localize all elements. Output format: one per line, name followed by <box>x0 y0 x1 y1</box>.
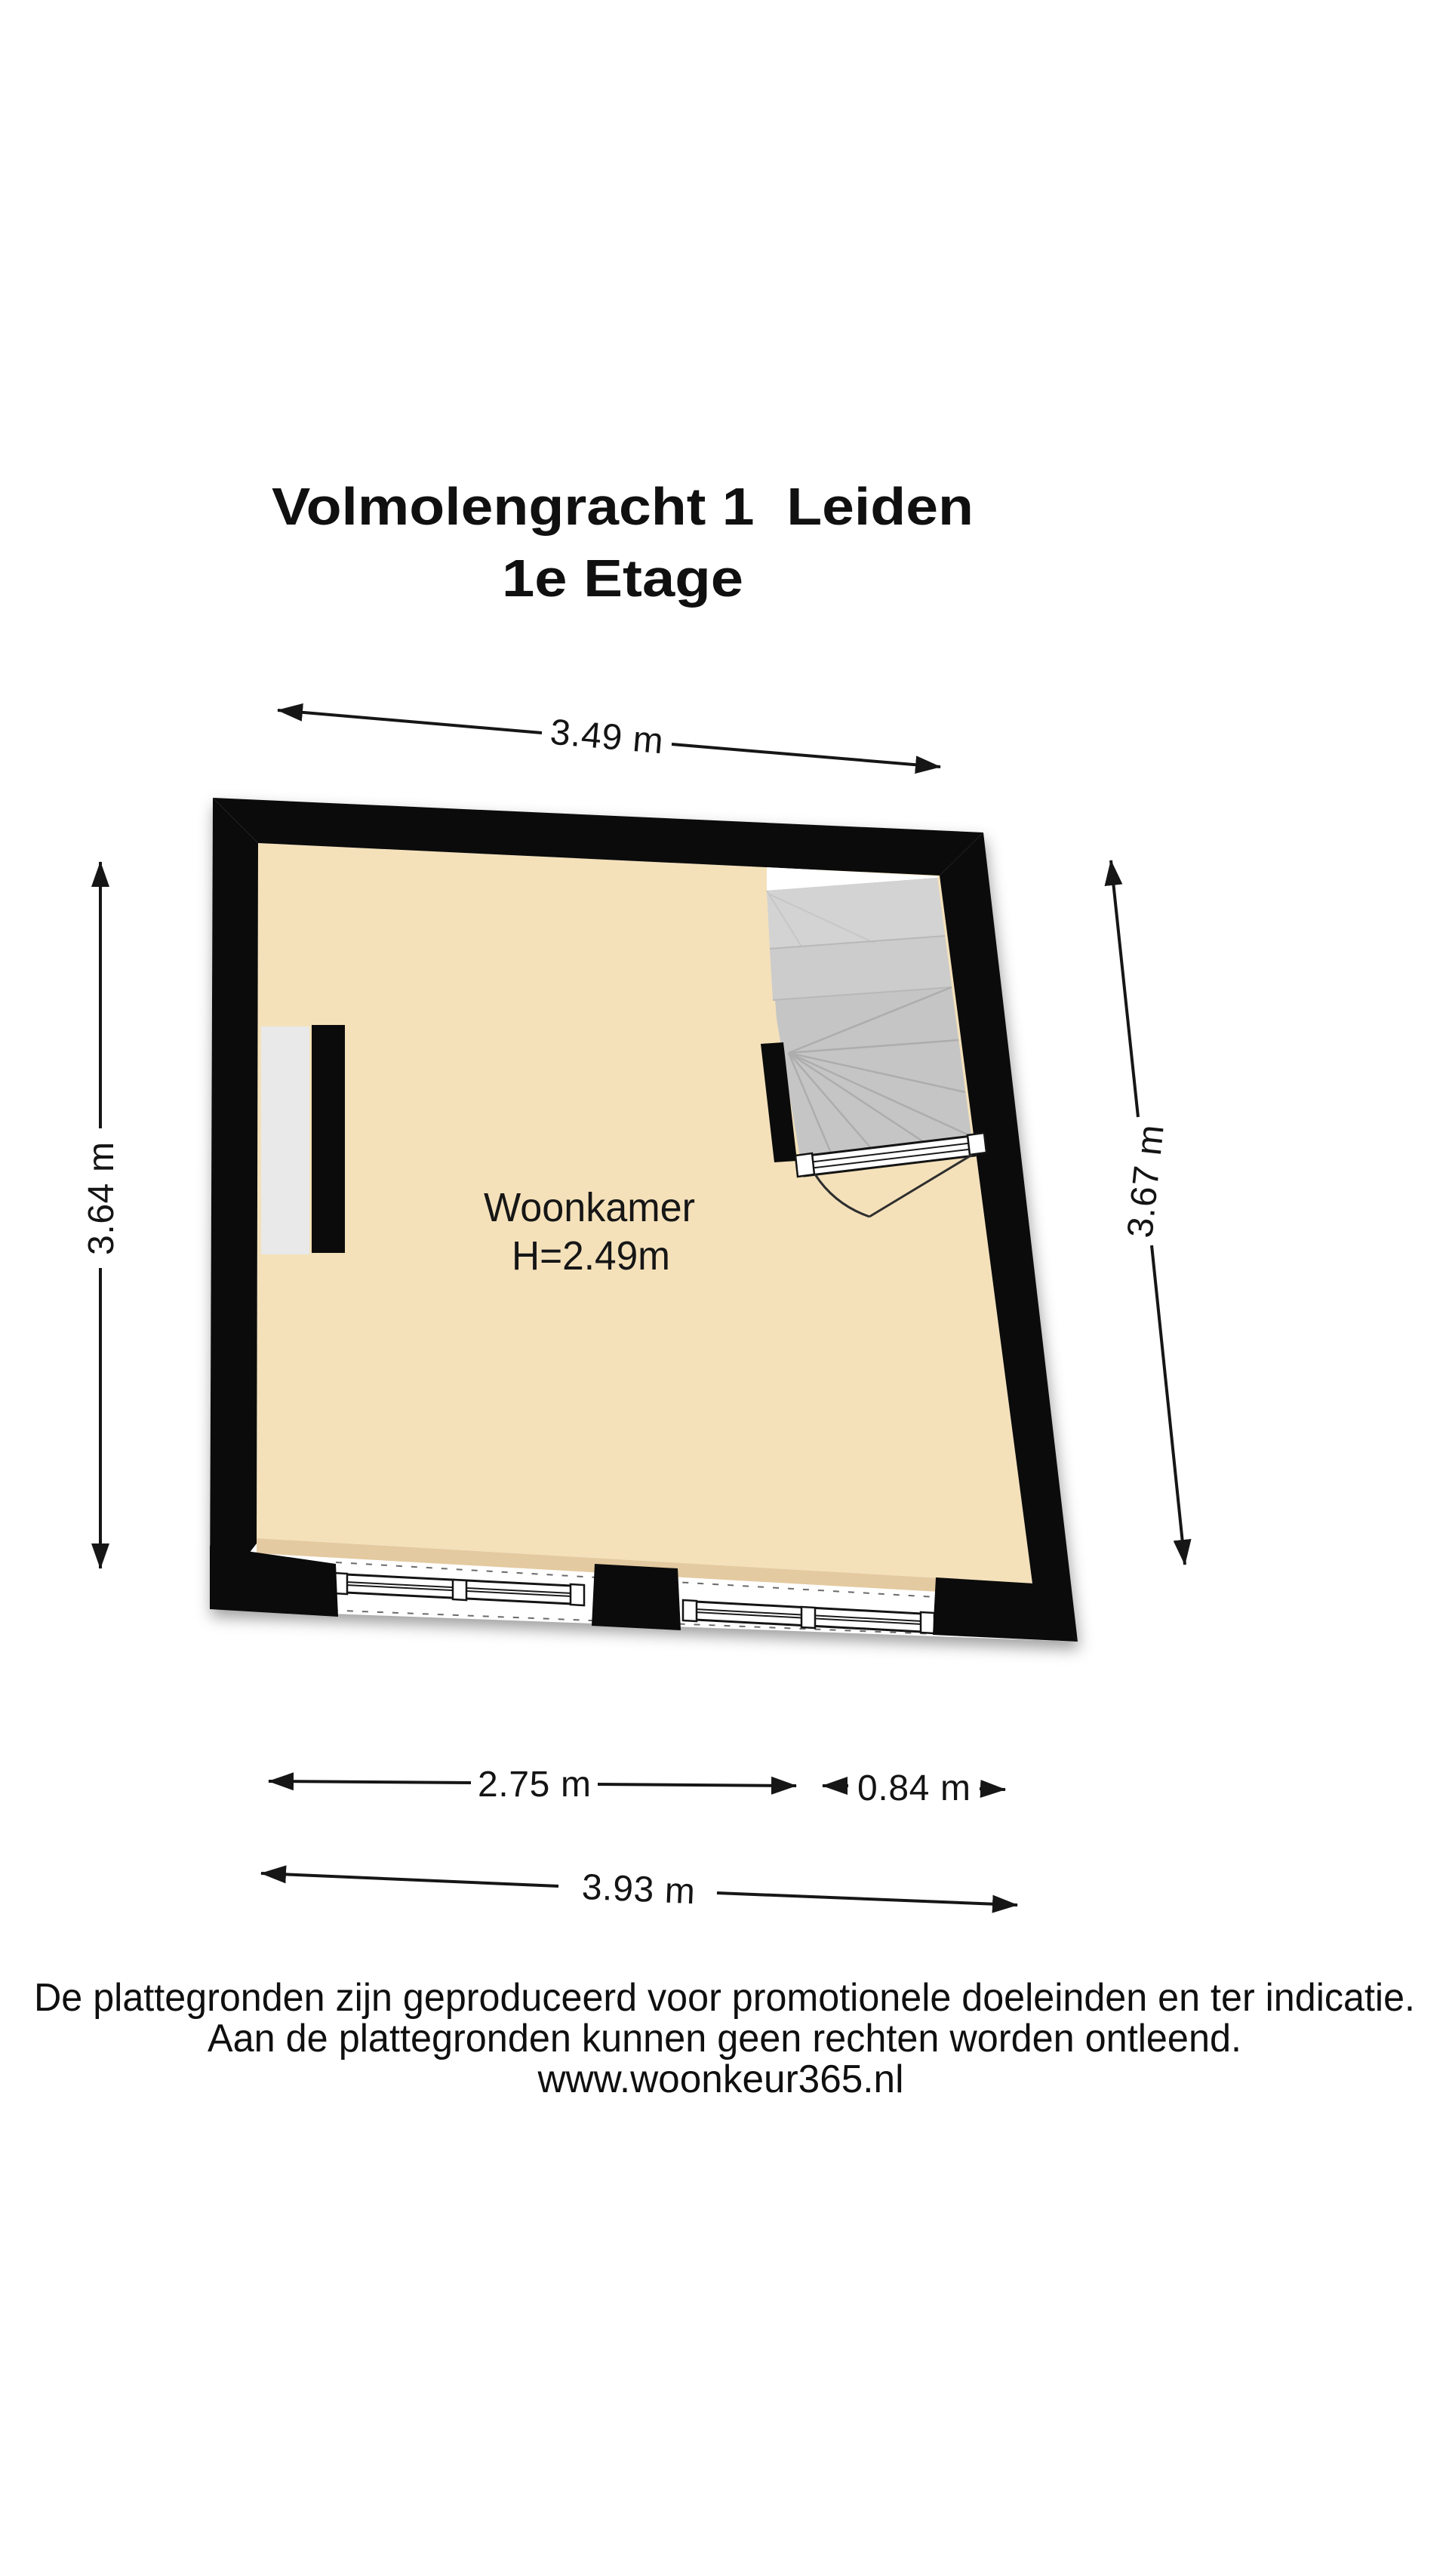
dimension-top: 3.49 m <box>278 710 940 767</box>
floorplan-canvas: Volmolengracht 1 Leiden 1e Etage <box>0 0 1449 2576</box>
floorplan-page: Volmolengracht 1 Leiden 1e Etage <box>0 0 1449 2576</box>
page-title-line2: 1e Etage <box>502 549 743 608</box>
dimension-bottom-window: 2.75 m <box>269 1765 796 1805</box>
dimension-bottom-window-line-right <box>598 1784 796 1786</box>
dimension-right-line-top <box>1111 860 1138 1117</box>
dimension-bottom-stair-label: 0.84 m <box>857 1768 971 1808</box>
room-label: Woonkamer <box>484 1185 695 1230</box>
wall-niche <box>261 1026 309 1254</box>
dimension-top-line-right <box>672 744 940 767</box>
window-right-mullion <box>801 1607 815 1628</box>
dimension-right: 3.67 m <box>1111 860 1185 1565</box>
dimension-left-label: 3.64 m <box>82 1142 122 1255</box>
dimension-top-line-left <box>278 710 542 733</box>
wall-left <box>210 798 258 1604</box>
page-title-line1: Volmolengracht 1 Leiden <box>272 477 974 536</box>
dimension-right-line-bottom <box>1152 1245 1185 1565</box>
footer-disclaimer-line1: De plattegronden zijn geproduceerd voor … <box>34 1976 1415 2020</box>
door-post-right <box>968 1133 986 1155</box>
dimension-bottom-window-label: 2.75 m <box>478 1765 591 1805</box>
dimension-bottom-total: 3.93 m <box>261 1867 1017 1912</box>
dimension-bottom-total-line-right <box>717 1893 1017 1905</box>
dimension-bottom-window-line-left <box>269 1781 471 1783</box>
window-right-post-left <box>683 1600 697 1621</box>
footer-website: www.woonkeur365.nl <box>537 2057 904 2101</box>
dimension-bottom-total-label: 3.93 m <box>581 1867 696 1912</box>
room-ceiling-height: H=2.49m <box>512 1233 670 1279</box>
chimney-block <box>312 1025 345 1253</box>
window-right-post-right <box>921 1612 934 1633</box>
wall-pillar-bottom <box>592 1564 681 1630</box>
footer-disclaimer-line2: Aan de plattegronden kunnen geen rechten… <box>208 2017 1241 2060</box>
door-post-left <box>795 1153 814 1177</box>
dimension-right-label: 3.67 m <box>1120 1123 1171 1240</box>
window-left-post-right <box>571 1584 584 1605</box>
window-left-mullion <box>453 1580 466 1600</box>
dimension-top-label: 3.49 m <box>549 712 665 762</box>
dimension-bottom-total-line-left <box>261 1873 558 1886</box>
dimension-bottom-stair-line-right <box>980 1789 1005 1790</box>
dimension-left: 3.64 m <box>82 862 122 1568</box>
dimension-bottom-stair: 0.84 m <box>823 1768 1005 1808</box>
